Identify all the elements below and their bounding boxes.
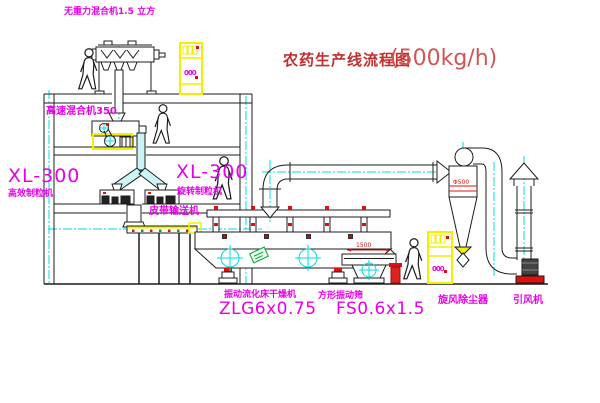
- label-high-speed-mixer: 高速混合机350: [46, 107, 117, 117]
- label-granulator-center: 旋转制粒机: [177, 188, 222, 197]
- exhaust-stack: [510, 163, 538, 260]
- person-figure: [153, 105, 170, 143]
- cad-flowsheet: 农药生产线流程图 (500kg/h) 无重力混合机1.5 立方 高速混合机350…: [0, 0, 600, 403]
- granulator-right: [145, 184, 179, 204]
- label-belt-conveyor: 皮带输送机: [149, 207, 199, 217]
- granulator-left: [100, 184, 134, 204]
- downcomer-duct: [486, 172, 517, 274]
- control-cabinet-2: [428, 232, 452, 283]
- cyclone-dimension-text: Φ500: [453, 180, 469, 186]
- sieve-dimension-text: 1500: [356, 243, 371, 249]
- label-sieve-model: FS0.6x1.5: [336, 301, 425, 318]
- exhaust-duct: [259, 161, 451, 218]
- gravity-mixer: [92, 41, 165, 113]
- label-xl300-left: XL-300: [8, 167, 80, 186]
- page-title-capacity: (500kg/h): [390, 48, 497, 70]
- cabinet2-display: 000: [432, 266, 444, 273]
- label-xl300-center: XL-300: [176, 163, 248, 182]
- label-fan: 引风机: [513, 296, 543, 306]
- induced-fan: [516, 259, 544, 283]
- label-gravity-mixer: 无重力混合机1.5 立方: [64, 8, 155, 17]
- cabinet1-display: 000: [184, 70, 196, 77]
- label-dryer-model: ZLG6x0.75: [219, 301, 317, 318]
- label-cyclone: 旋风除尘器: [438, 296, 488, 306]
- label-granulator-left: 高效制粒机: [8, 190, 53, 199]
- person-figure: [404, 239, 422, 279]
